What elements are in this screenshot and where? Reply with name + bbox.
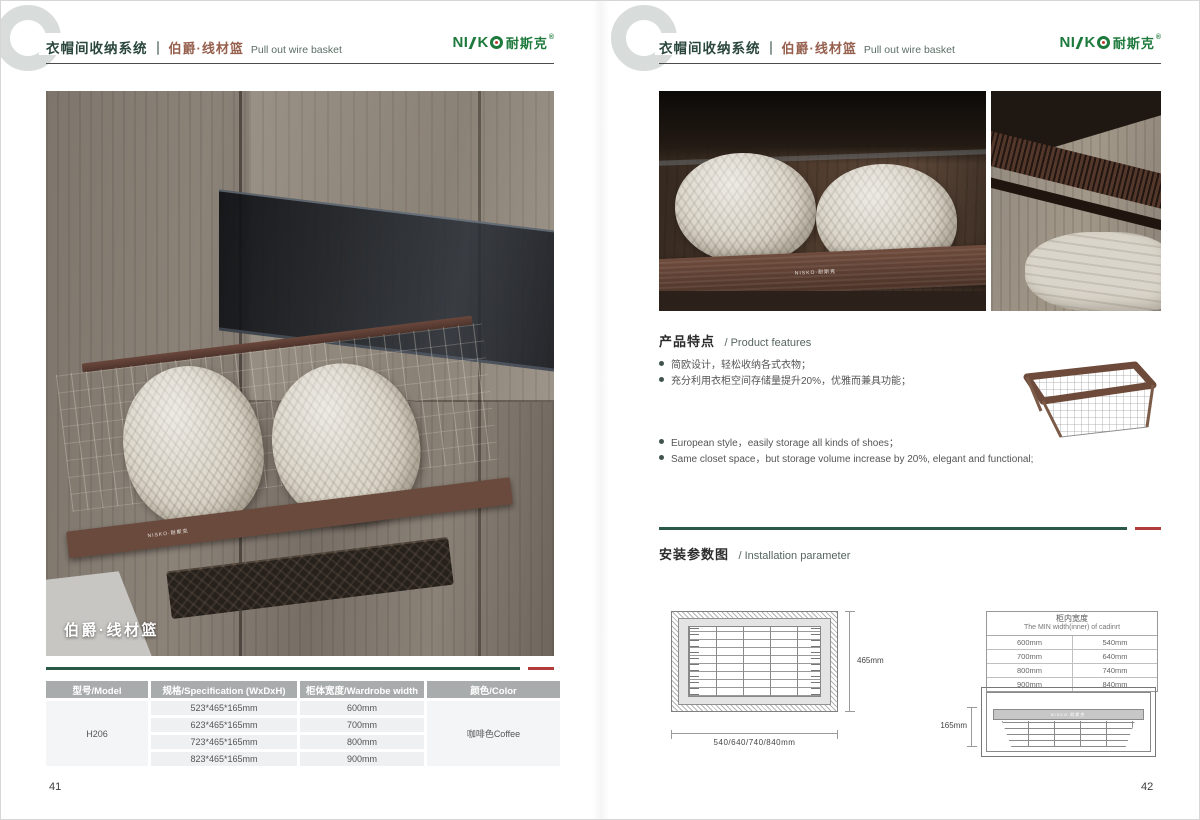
installation-title-en: / Installation parameter: [738, 550, 850, 562]
header-title: 衣帽间收纳系统: [46, 41, 148, 56]
basket-wire-drawing: [1002, 721, 1135, 747]
spec-cell: 523*465*165mm: [151, 701, 297, 715]
feature-item: 简欧设计，轻松收纳各式衣物；: [659, 355, 911, 371]
section-rule: [659, 527, 1161, 530]
feature-text: Same closet space，but storage volume inc…: [671, 450, 1033, 465]
rail-brand-watermark: NISKO·耐斯克: [147, 527, 189, 539]
feature-text: European style，easily storage all kinds …: [671, 434, 899, 449]
width-dimension-line: [671, 733, 838, 734]
header-subtitle-en: Pull out wire basket: [251, 44, 342, 56]
features-list-cn: 简欧设计，轻松收纳各式衣物； 充分利用衣柜空间存储量提升20%，优雅而兼具功能；: [659, 355, 911, 387]
table-header-color: 颜色/Color: [427, 681, 560, 698]
feature-text: 简欧设计，轻松收纳各式衣物；: [671, 356, 811, 371]
depth-dimension-label: 465mm: [857, 656, 884, 665]
page-gutter: [593, 1, 609, 820]
basket-front-rail-drawing: NISKO·耐斯克: [993, 709, 1144, 720]
header-separator: ｜: [765, 41, 778, 56]
installation-title: 安装参数图 / Installation parameter: [659, 544, 850, 564]
page-header: 衣帽间收纳系统｜伯爵·线材篮Pull out wire basket NI K …: [1, 1, 601, 67]
min-width-table-body: 600mm540mm 700mm640mm 800mm740mm 900mm84…: [987, 636, 1157, 691]
floor: [46, 571, 178, 656]
logo-letter-k: K: [477, 34, 488, 51]
cabinet-outline: NISKO·耐斯克: [981, 687, 1156, 757]
width-cell: 700mm: [300, 718, 424, 732]
table-cell: 640mm: [1072, 649, 1157, 663]
header-title-group: 衣帽间收纳系统｜伯爵·线材篮Pull out wire basket: [659, 37, 955, 58]
wire-basket: NISKO·耐斯克: [46, 313, 513, 558]
features-title-cn: 产品特点: [659, 334, 715, 349]
logo-letters-ni: NI: [452, 34, 468, 51]
section-rule: [46, 667, 554, 670]
header-rule: [46, 63, 554, 64]
header-subtitle: 伯爵·线材篮: [782, 41, 857, 56]
table-cell: 740mm: [1072, 663, 1157, 677]
pullout-shoe-tray: [166, 537, 454, 619]
width-cell: 600mm: [300, 701, 424, 715]
top-view-diagram: 465mm 540/640/740/840mm: [661, 605, 941, 760]
basket-corner-photo: [991, 91, 1161, 311]
table-cell: 700mm: [987, 649, 1072, 663]
spec-cell: 823*465*165mm: [151, 752, 297, 766]
bullet-dot-icon: [659, 439, 664, 444]
logo-letters-ni: NI: [1059, 34, 1075, 51]
wire-basket-illustration: [1011, 333, 1161, 465]
logo-chinese: 耐斯克: [1113, 33, 1155, 52]
rule-green-segment: [659, 527, 1127, 530]
page-number: 41: [49, 781, 61, 793]
brand-logo: NI K 耐斯克 ®: [1059, 33, 1161, 52]
model-cell: H206: [46, 701, 148, 766]
min-width-table: 柜内宽度 The MIN width(inner) of cadinrt 600…: [986, 611, 1158, 692]
spec-cell: 723*465*165mm: [151, 735, 297, 749]
page-42: 衣帽间收纳系统｜伯爵·线材篮Pull out wire basket NI K …: [601, 1, 1200, 820]
logo-chinese: 耐斯克: [506, 33, 548, 52]
rule-green-segment: [46, 667, 520, 670]
header-title: 衣帽间收纳系统: [659, 41, 761, 56]
width-cell: 900mm: [300, 752, 424, 766]
feature-item: European style，easily storage all kinds …: [659, 433, 1033, 449]
feature-item: 充分利用衣柜空间存储量提升20%，优雅而兼具功能；: [659, 371, 911, 387]
logo-letter-k: K: [1084, 34, 1095, 51]
header-subtitle: 伯爵·线材篮: [169, 41, 244, 56]
min-width-title-cn: 柜内宽度: [1056, 614, 1088, 623]
product-render: [1011, 333, 1161, 465]
photo-caption: 伯爵·线材篮: [64, 619, 159, 640]
table-cell: 800mm: [987, 663, 1072, 677]
color-cell: 咖啡色Coffee: [427, 701, 560, 766]
height-dimension-line: [971, 707, 972, 747]
min-width-table-header: 柜内宽度 The MIN width(inner) of cadinrt: [987, 612, 1157, 636]
features-title-en: / Product features: [724, 337, 811, 349]
wire-ticks: [690, 628, 699, 695]
logo-o-icon: [490, 36, 503, 49]
feature-item: Same closet space，but storage volume inc…: [659, 449, 1033, 465]
bullet-dot-icon: [659, 455, 664, 460]
basket-closeup-photo: NISKO·耐斯克: [659, 91, 986, 311]
width-cell: 800mm: [300, 735, 424, 749]
width-dimension-label: 540/640/740/840mm: [671, 738, 838, 747]
table-cell: 540mm: [1072, 636, 1157, 649]
page-41: 衣帽间收纳系统｜伯爵·线材篮Pull out wire basket NI K …: [1, 1, 601, 820]
basket-grid: [688, 626, 821, 697]
installation-title-cn: 安装参数图: [659, 547, 729, 562]
bullet-dot-icon: [659, 377, 664, 382]
feature-text: 充分利用衣柜空间存储量提升20%，优雅而兼具功能；: [671, 372, 911, 387]
header-subtitle-en: Pull out wire basket: [864, 44, 955, 56]
header-title-group: 衣帽间收纳系统｜伯爵·线材篮Pull out wire basket: [46, 37, 342, 58]
rail-brand-watermark: NISKO·耐斯克: [795, 267, 837, 276]
bullet-dot-icon: [659, 361, 664, 366]
folded-sweater: [675, 153, 816, 263]
rail-brand-watermark: NISKO·耐斯克: [1051, 712, 1086, 718]
catalog-spread: 衣帽间收纳系统｜伯爵·线材篮Pull out wire basket NI K …: [0, 0, 1200, 820]
logo-o-icon: [1097, 36, 1110, 49]
side-view-diagram: NISKO·耐斯克 165mm: [931, 685, 1161, 763]
features-title: 产品特点 / Product features: [659, 331, 811, 351]
features-list-en: European style，easily storage all kinds …: [659, 433, 1033, 465]
folded-towel: [1025, 232, 1161, 311]
rule-red-segment: [1135, 527, 1161, 530]
rule-red-segment: [528, 667, 554, 670]
page-number: 42: [1141, 781, 1153, 793]
registered-mark: ®: [549, 34, 554, 41]
min-width-title-en: The MIN width(inner) of cadinrt: [987, 624, 1157, 633]
brand-logo: NI K 耐斯克 ®: [452, 33, 554, 52]
wardrobe-photo: NISKO·耐斯克 伯爵·线材篮: [46, 91, 554, 656]
wood-base: [659, 291, 986, 311]
depth-dimension-line: [849, 611, 850, 712]
table-header-model: 型号/Model: [46, 681, 148, 698]
header-rule: [659, 63, 1161, 64]
table-header-spec: 规格/Specification (WxDxH): [151, 681, 297, 698]
table-cell: 600mm: [987, 636, 1072, 649]
header-separator: ｜: [152, 41, 165, 56]
page-header: 衣帽间收纳系统｜伯爵·线材篮Pull out wire basket NI K …: [601, 1, 1200, 67]
table-header-width: 柜体宽度/Wardrobe width: [300, 681, 424, 698]
spec-table: 型号/Model 规格/Specification (WxDxH) 柜体宽度/W…: [46, 681, 554, 766]
registered-mark: ®: [1156, 34, 1161, 41]
height-dimension-label: 165mm: [931, 721, 967, 730]
spec-cell: 623*465*165mm: [151, 718, 297, 732]
wire-ticks: [811, 628, 820, 695]
